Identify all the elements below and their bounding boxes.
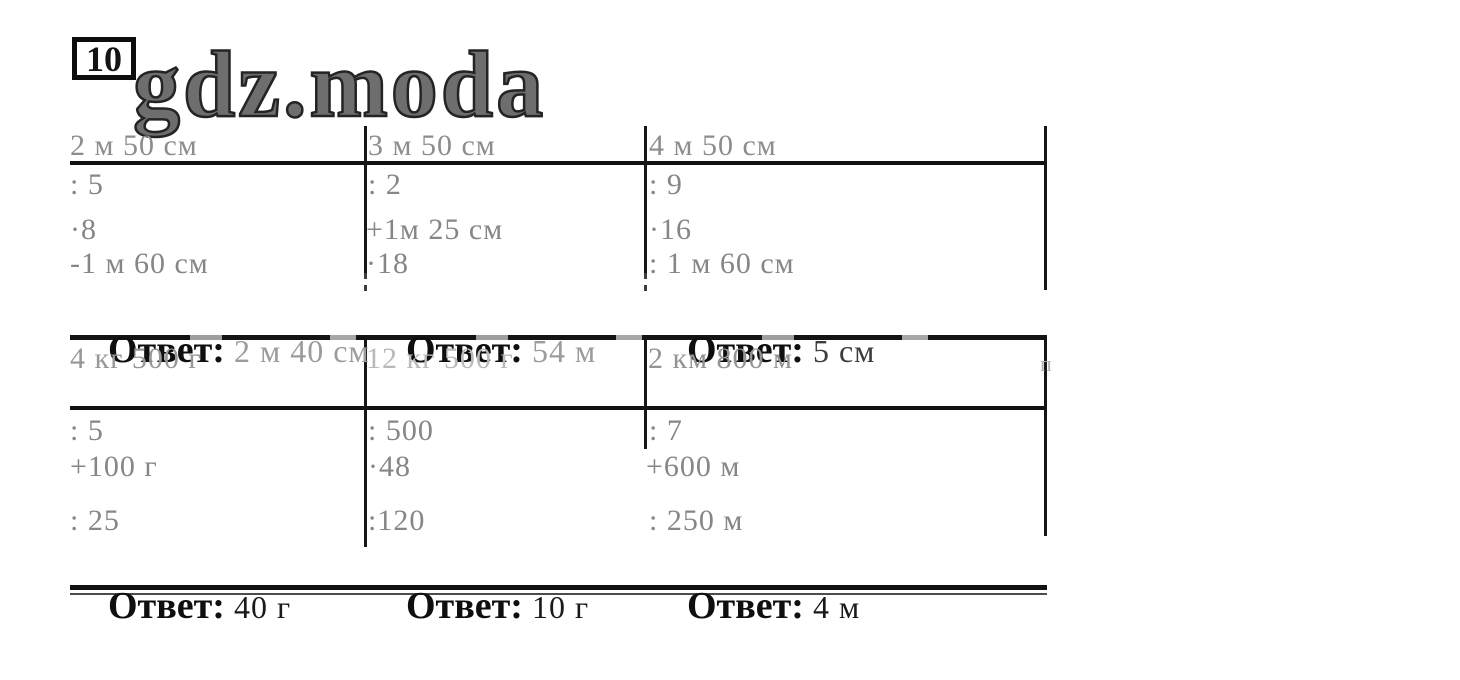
- answer-label: Ответ:: [406, 585, 523, 627]
- answer-value: 54 м: [532, 333, 596, 369]
- answer-label: Ответ:: [108, 585, 225, 627]
- problem-start: 2 м 50 см: [70, 131, 198, 161]
- problem-step: ·48: [368, 452, 411, 482]
- answer-line: Ответ:10 г: [368, 549, 589, 663]
- problem-step: : 1 м 60 см: [649, 249, 795, 279]
- problem-start: 3 м 50 см: [368, 131, 496, 161]
- problem-start: 2 км 800 м: [648, 344, 793, 374]
- problem-step: : 500: [368, 416, 434, 446]
- problem-step: : 250 м: [649, 506, 743, 536]
- problem-step: : 7: [649, 416, 683, 446]
- grid-line-row1-divider2: [644, 126, 647, 273]
- problem-step: :120: [368, 506, 425, 536]
- problem-step: ·18: [366, 249, 409, 279]
- grid-line-row1-header-underline: [70, 161, 1047, 165]
- problem-step: : 5: [70, 170, 104, 200]
- grid-line-row1-divider2-dash: [644, 273, 647, 291]
- problem-start: 4 м 50 см: [649, 131, 777, 161]
- grid-line-row1-right-border: [1044, 126, 1047, 290]
- problem-step: +600 м: [646, 452, 740, 482]
- answer-line: Ответ:4 м: [649, 549, 860, 663]
- answer-value: 4 м: [813, 589, 860, 625]
- problem-step: : 25: [70, 506, 120, 536]
- problem-step: +100 г: [70, 452, 158, 482]
- problem-step: ·16: [649, 215, 692, 245]
- problem-step: ·8: [70, 215, 97, 245]
- grid-line-row2-divider2: [644, 336, 647, 449]
- scan-artifact-text: п: [1040, 353, 1052, 375]
- problem-step: -1 м 60 см: [70, 249, 209, 279]
- problem-step: : 5: [70, 416, 104, 446]
- problem-start: 12 кг 500 г: [366, 344, 514, 374]
- worksheet-page: 10 gdz.moda 2 м 50 см 3 м 50 см 4 м 50 с…: [0, 0, 1460, 680]
- problem-step: : 9: [649, 170, 683, 200]
- problem-step: +1м 25 см: [366, 215, 503, 245]
- problem-start: 4 кг 500 г: [70, 344, 202, 374]
- answer-value: 40 г: [234, 589, 291, 625]
- answer-label: Ответ:: [687, 585, 804, 627]
- gdz-moda-logo: gdz.moda: [133, 38, 546, 132]
- answer-value: 5 см: [813, 333, 875, 369]
- task-number-badge: 10: [72, 37, 136, 80]
- answer-value: 10 г: [532, 589, 589, 625]
- answer-line: Ответ:40 г: [70, 549, 291, 663]
- problem-step: : 2: [368, 170, 402, 200]
- answer-value: 2 м 40 см: [234, 333, 370, 369]
